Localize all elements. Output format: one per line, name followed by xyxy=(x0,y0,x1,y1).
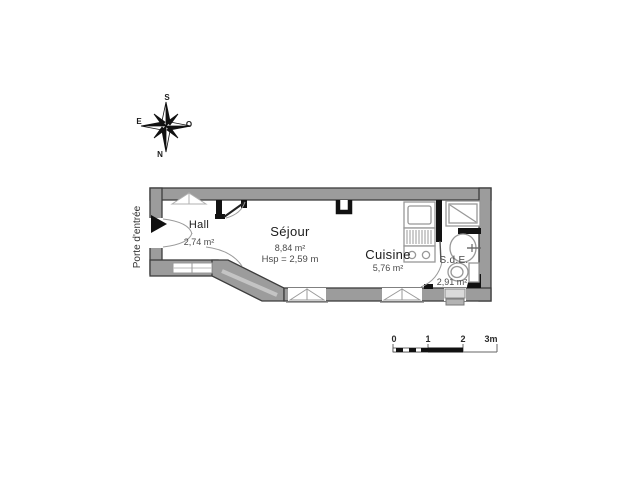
kitchen-counter-hatch xyxy=(404,228,435,246)
room-area-sejour: 8,84 m² xyxy=(260,243,320,253)
room-name-sejour: Séjour xyxy=(258,225,322,240)
floor-plan-page: S O E N Porte d'entrée Hall 2,74 m² Séjo… xyxy=(0,0,640,480)
compass-letter-bottom: N xyxy=(155,150,165,159)
window-3-small xyxy=(444,288,466,305)
flue-notch xyxy=(338,200,350,212)
sde-fixtures xyxy=(446,201,481,282)
room-area-cuisine: 5,76 m² xyxy=(359,263,417,273)
entrance-label: Porte d'entrée xyxy=(121,202,155,272)
compass-letter-left: E xyxy=(134,117,144,126)
compass-letter-right: O xyxy=(184,120,194,129)
wall-top xyxy=(150,188,491,200)
room-area-sde: 2,91 m² xyxy=(427,277,477,287)
room-area-hall: 2,74 m² xyxy=(169,237,229,247)
kitchen-sink-icon xyxy=(404,202,435,228)
scale-tick-3: 3m xyxy=(482,334,500,344)
room-name-sde: S.d.E. xyxy=(429,255,479,267)
scale-bar xyxy=(393,344,497,353)
floor-plan-drawing xyxy=(0,0,640,480)
scale-tick-1: 1 xyxy=(423,334,433,344)
window-1 xyxy=(286,288,328,302)
window-2 xyxy=(380,288,424,302)
shower-icon xyxy=(446,201,480,226)
scale-tick-2: 2 xyxy=(458,334,468,344)
scale-tick-0: 0 xyxy=(389,334,399,344)
hall-bottom-window xyxy=(173,263,212,273)
room-name-hall: Hall xyxy=(176,219,222,232)
room-ceiling-height-sejour: Hsp = 2,59 m xyxy=(250,255,330,266)
compass-letter-top: S xyxy=(163,93,171,102)
room-name-cuisine: Cuisine xyxy=(356,248,420,263)
